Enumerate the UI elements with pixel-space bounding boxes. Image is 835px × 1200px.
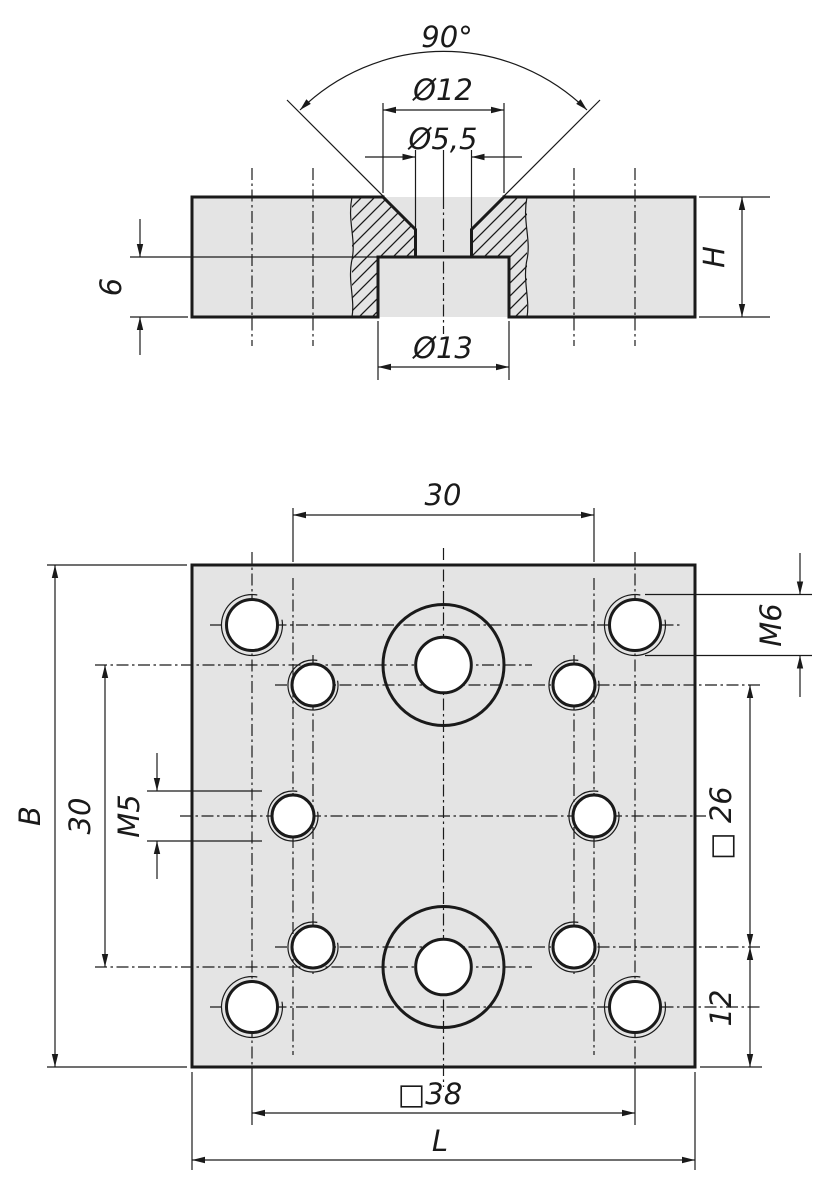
hole-spacing-vertical-label: 30	[63, 798, 97, 835]
dim-square-pattern-inner: □ 26	[704, 685, 750, 947]
plate-width-label: B	[13, 806, 47, 826]
countersink-diameter-label: Ø12	[412, 73, 473, 107]
hole-spacing-horizontal-label: 30	[425, 478, 462, 512]
edge-distance-label: 12	[704, 990, 738, 1027]
plate-height-label: H	[697, 246, 731, 268]
section-view: 90° Ø12 Ø5,5 Ø13 H	[94, 20, 770, 380]
m5-thread-label: M5	[112, 794, 146, 837]
through-hole-diameter-label: Ø5,5	[408, 122, 478, 156]
technical-drawing-svg: 90° Ø12 Ø5,5 Ø13 H	[0, 0, 835, 1200]
counterbore-diameter-label: Ø13	[412, 331, 473, 365]
angle-dimension-label: 90°	[421, 20, 472, 54]
dim-square-pattern-outer: □38	[252, 1077, 635, 1125]
top-view: 30 B 30 M5 M6 □ 26	[13, 478, 812, 1170]
outer-square-pattern-label: □38	[398, 1077, 462, 1111]
dim-plate-width: B	[13, 565, 187, 1067]
counterbore-depth-label: 6	[94, 278, 128, 296]
m6-thread-label: M6	[754, 603, 788, 646]
plate-length-label: L	[432, 1124, 448, 1158]
drawing-canvas: 90° Ø12 Ø5,5 Ø13 H	[0, 0, 835, 1200]
inner-square-pattern-label: □ 26	[704, 786, 738, 860]
dim-hole-spacing-vertical: 30	[63, 665, 105, 967]
dim-plate-height: H	[697, 197, 770, 317]
